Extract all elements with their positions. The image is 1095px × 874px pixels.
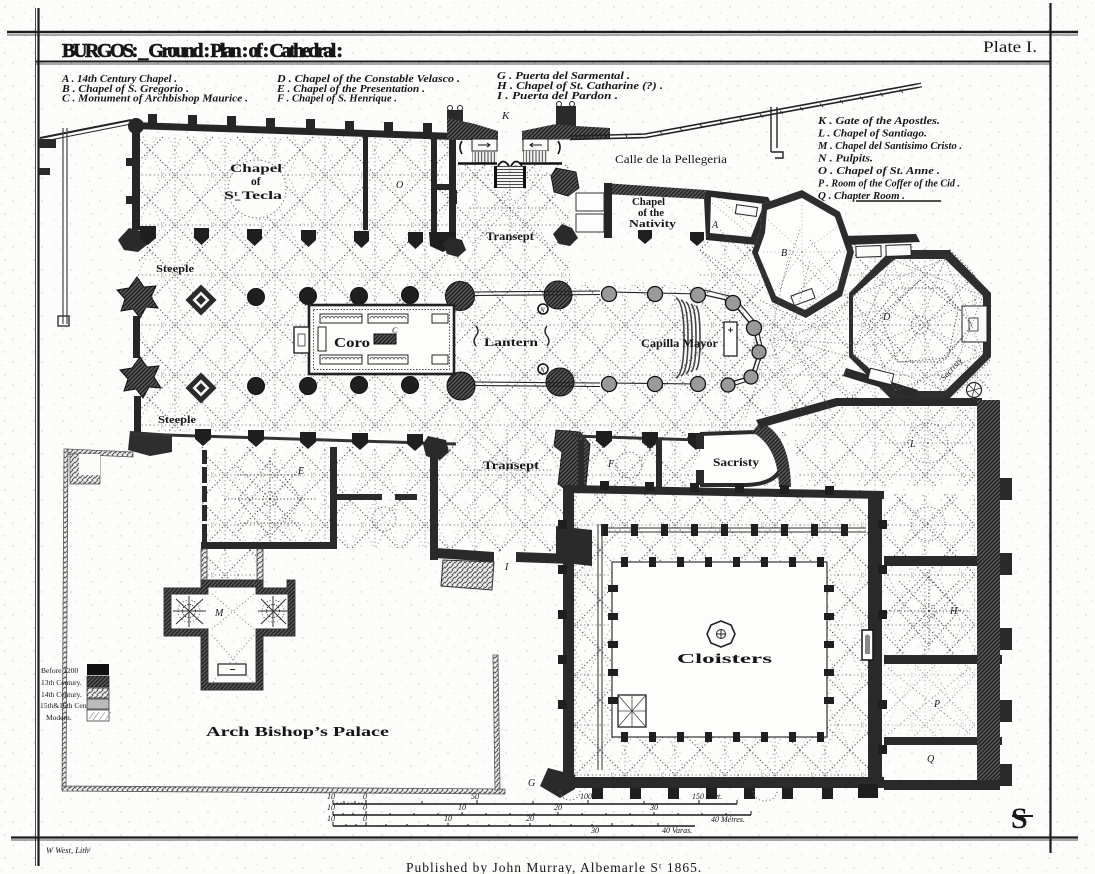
svg-text:Sᵗ̱﻿ Tecla: Sᵗ̱﻿ Tecla xyxy=(224,190,282,202)
svg-text:Capilla Mayor: Capilla Mayor xyxy=(641,338,718,350)
svg-text:Published by John Murray, Alb: Published by John Murray, Albemarle Sᵗ 1… xyxy=(406,860,702,874)
svg-text:Arch Bishop’s Palace: Arch Bishop’s Palace xyxy=(206,724,389,739)
svg-text:C: C xyxy=(392,326,398,335)
svg-text:F . Chapel of S. Henrique .: F . Chapel of S. Henrique . xyxy=(276,94,397,105)
svg-text:N: N xyxy=(539,307,545,315)
svg-text:0: 0 xyxy=(363,814,367,823)
svg-text:13th Century.: 13th Century. xyxy=(41,678,82,687)
svg-text:Steeple: Steeple xyxy=(156,263,194,275)
svg-text:W West, Lithʲ: W West, Lithʲ xyxy=(46,845,91,855)
svg-text:Coro: Coro xyxy=(334,336,370,351)
svg-text:30: 30 xyxy=(649,803,658,812)
svg-text:I: I xyxy=(504,562,509,573)
svg-text:G: G xyxy=(528,778,535,789)
svg-text:P . Room of the Coffer of the: P . Room of the Coffer of the Cid . xyxy=(818,179,960,190)
svg-text:20: 20 xyxy=(526,814,534,823)
svg-text:50: 50 xyxy=(471,792,479,801)
svg-text:L: L xyxy=(909,439,916,450)
svg-text:Chapel: Chapel xyxy=(632,197,665,208)
svg-text:K: K xyxy=(501,110,510,122)
svg-text:Calle de la Pellegeria: Calle de la Pellegeria xyxy=(615,152,728,166)
svg-text:of: of xyxy=(251,176,261,188)
svg-text:150 Feet.: 150 Feet. xyxy=(692,792,722,801)
svg-text:0: 0 xyxy=(363,792,367,801)
svg-text:BURGOS: _ Ground : Plan : of :: BURGOS: _ Ground : Plan : of : Cathedral… xyxy=(62,40,343,62)
svg-text:30: 30 xyxy=(590,826,599,835)
svg-text:S: S xyxy=(1011,802,1028,835)
svg-text:0: 0 xyxy=(363,803,367,812)
svg-text:B: B xyxy=(781,248,787,259)
svg-text:Q: Q xyxy=(927,754,935,765)
svg-text:Sacristy: Sacristy xyxy=(713,457,759,469)
svg-text:10: 10 xyxy=(327,803,335,812)
svg-text:Plate I.: Plate I. xyxy=(983,39,1037,56)
svg-text:E: E xyxy=(297,466,304,477)
svg-text:C . Monument of Archbishop Mau: C . Monument of Archbishop Maurice . xyxy=(62,94,248,105)
svg-text:Before 1200: Before 1200 xyxy=(41,666,79,675)
svg-text:N . Pulpits.: N . Pulpits. xyxy=(817,154,873,165)
svg-text:15th&16th Cent.: 15th&16th Cent. xyxy=(40,701,91,710)
svg-text:of the: of the xyxy=(638,208,665,219)
svg-text:40 Métres.: 40 Métres. xyxy=(711,815,745,824)
svg-text:Nativity: Nativity xyxy=(629,219,676,230)
svg-text:Lantern: Lantern xyxy=(484,337,539,349)
svg-text:100: 100 xyxy=(580,792,592,801)
svg-text:10: 10 xyxy=(458,803,466,812)
svg-text:M: M xyxy=(214,608,224,619)
svg-text:H: H xyxy=(949,606,958,617)
svg-text:K . Gate of the Apostles.: K . Gate of the Apostles. xyxy=(817,116,940,127)
svg-text:10: 10 xyxy=(444,814,452,823)
svg-text:14th Century.: 14th Century. xyxy=(41,690,82,699)
svg-text:F: F xyxy=(607,459,615,470)
svg-text:N: N xyxy=(539,367,545,375)
svg-text:20: 20 xyxy=(554,803,562,812)
svg-text:A: A xyxy=(711,220,719,231)
svg-text:L . Chapel of Santiago.: L . Chapel of Santiago. xyxy=(817,129,927,140)
svg-text:10: 10 xyxy=(327,792,335,801)
svg-text:Steeple: Steeple xyxy=(158,414,196,426)
svg-text:O . Chapel of St. Anne .: O . Chapel of St. Anne . xyxy=(818,166,940,177)
svg-text:M . Chapel del Santisimo Crist: M . Chapel del Santisimo Cristo . xyxy=(817,141,962,152)
svg-text:Chapel: Chapel xyxy=(230,163,282,175)
svg-text:Cloisters: Cloisters xyxy=(677,652,773,667)
svg-text:O: O xyxy=(396,180,403,191)
svg-text:P: P xyxy=(933,699,940,710)
svg-text:40 Varas.: 40 Varas. xyxy=(662,826,692,835)
svg-text:Modern.: Modern. xyxy=(46,713,72,722)
svg-text:10: 10 xyxy=(327,814,335,823)
svg-text:I . Puerta del Pardon .: I . Puerta del Pardon . xyxy=(496,91,618,102)
